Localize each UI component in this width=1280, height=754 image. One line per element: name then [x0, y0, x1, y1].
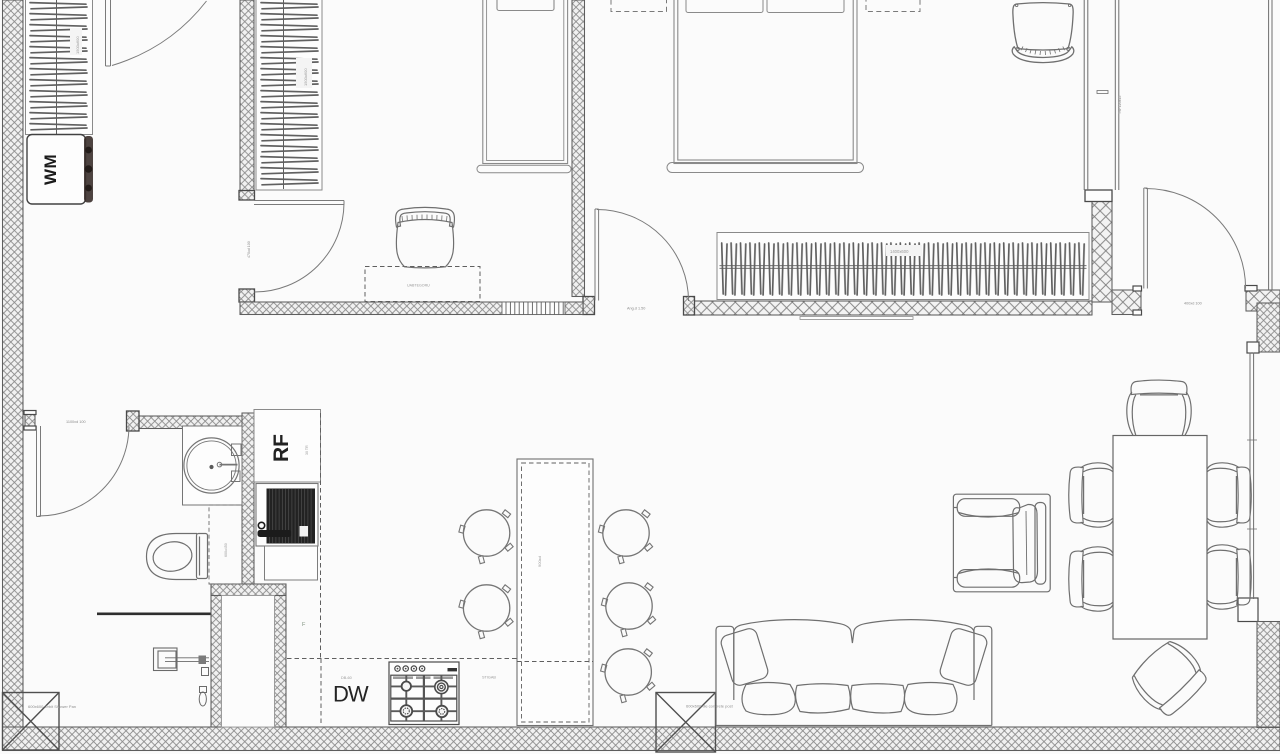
svg-text:30 TR: 30 TR: [305, 445, 309, 455]
svg-text:1500x600: 1500x600: [75, 36, 80, 54]
svg-text:1500x600: 1500x600: [303, 68, 308, 86]
svg-text:400xd 100: 400xd 100: [1184, 302, 1202, 306]
svg-text:WM: WM: [41, 154, 60, 185]
svg-text:STIGAB: STIGAB: [482, 676, 496, 680]
svg-text:600x450: 600x450: [224, 543, 228, 557]
svg-text:Ang.d 1.50: Ang.d 1.50: [627, 307, 645, 311]
svg-text:DB-60: DB-60: [341, 676, 352, 680]
svg-text:470xd 100: 470xd 100: [247, 241, 251, 258]
svg-text:RF: RF: [270, 434, 293, 462]
svg-text:600x600 tile concrete post: 600x600 tile concrete post: [686, 704, 734, 709]
svg-text:1100xd 100: 1100xd 100: [66, 420, 86, 424]
svg-text:UABTEGORU: UABTEGORU: [407, 284, 430, 288]
svg-text:900xd: 900xd: [537, 556, 542, 567]
svg-text:TW 120x15: TW 120x15: [1118, 96, 1122, 114]
svg-text:1400x600: 1400x600: [890, 249, 909, 254]
svg-text:600x600 Orbit Shower Pan: 600x600 Orbit Shower Pan: [28, 704, 76, 709]
svg-text:DW: DW: [333, 682, 369, 707]
